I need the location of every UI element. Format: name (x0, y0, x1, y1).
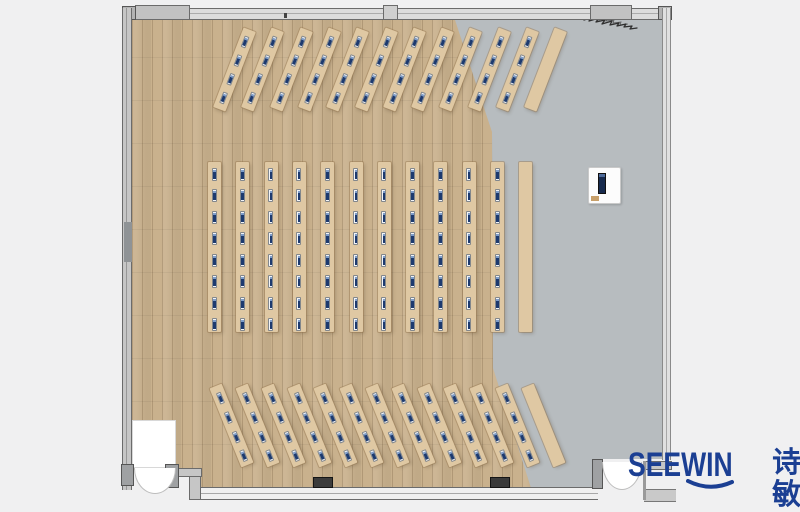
monitor (495, 297, 500, 310)
monitor (240, 254, 245, 267)
monitor (457, 411, 466, 424)
desk-strip-middle (463, 162, 476, 332)
monitor (353, 254, 358, 267)
monitor (438, 211, 443, 224)
monitor (410, 318, 415, 331)
monitor (257, 431, 266, 444)
desk-strip-middle (350, 162, 363, 332)
monitor (381, 254, 386, 267)
monitor (480, 73, 489, 86)
monitor (233, 54, 242, 67)
logo-swoosh-icon (686, 479, 734, 491)
monitor (319, 392, 328, 405)
monitor (410, 254, 415, 267)
monitor (466, 275, 471, 288)
left-wall-post (124, 222, 132, 262)
monitor (360, 91, 369, 104)
monitor (381, 232, 386, 245)
monitor (466, 189, 471, 202)
monitor (240, 232, 245, 245)
monitor (254, 73, 263, 86)
monitor (296, 275, 301, 288)
monitor (296, 168, 301, 181)
monitor (240, 168, 245, 181)
monitor (405, 411, 414, 424)
lectern (588, 167, 621, 204)
monitor (301, 411, 310, 424)
desk-strip-middle (434, 162, 447, 332)
logo-latin-text: SEEWIN (628, 448, 733, 482)
monitor (475, 392, 484, 405)
monitor (466, 232, 471, 245)
monitor (381, 318, 386, 331)
desk-strip-middle (321, 162, 334, 332)
monitor (495, 232, 500, 245)
monitor (394, 449, 403, 462)
monitor (219, 91, 228, 104)
monitor (438, 275, 443, 288)
desk-strip-middle (293, 162, 306, 332)
monitor (345, 392, 354, 405)
monitor (438, 189, 443, 202)
monitor (410, 232, 415, 245)
monitor (275, 411, 284, 424)
monitor (396, 73, 405, 86)
monitor (495, 318, 500, 331)
monitor (325, 211, 330, 224)
monitor (446, 449, 455, 462)
monitor (388, 91, 397, 104)
monitor (223, 411, 232, 424)
monitor (410, 189, 415, 202)
column-pillar (490, 477, 510, 488)
monitor (516, 54, 525, 67)
monitor (282, 73, 291, 86)
monitor (473, 91, 482, 104)
monitor (410, 275, 415, 288)
monitor (240, 211, 245, 224)
monitor (268, 211, 273, 224)
monitor (304, 91, 313, 104)
monitor (240, 35, 249, 48)
monitor (381, 275, 386, 288)
monitor (353, 168, 358, 181)
lectern-shelf (591, 196, 599, 201)
monitor (368, 449, 377, 462)
monitor (449, 392, 458, 405)
monitor (466, 297, 471, 310)
monitor (296, 254, 301, 267)
monitor (438, 297, 443, 310)
monitor (268, 189, 273, 202)
monitor (275, 91, 284, 104)
monitor (240, 275, 245, 288)
monitor (212, 254, 217, 267)
monitor (325, 168, 330, 181)
monitor (353, 411, 362, 424)
monitor (293, 392, 302, 405)
monitor (381, 211, 386, 224)
monitor (410, 211, 415, 224)
monitor (524, 449, 533, 462)
monitor (309, 431, 318, 444)
monitor (212, 232, 217, 245)
monitor (439, 431, 448, 444)
monitor (445, 91, 454, 104)
monitor (483, 411, 492, 424)
monitor (264, 449, 273, 462)
monitor (403, 54, 412, 67)
monitor (316, 449, 325, 462)
monitor (502, 91, 511, 104)
desk-strip-middle (519, 162, 532, 332)
monitor (467, 35, 476, 48)
monitor (290, 54, 299, 67)
monitor (296, 297, 301, 310)
monitor (335, 431, 344, 444)
floor-plan: SEEWIN 诗敏 (0, 0, 800, 507)
monitor (466, 318, 471, 331)
monitor (517, 431, 526, 444)
monitor (397, 392, 406, 405)
desk-layer (0, 0, 800, 507)
monitor (374, 54, 383, 67)
monitor (290, 449, 299, 462)
monitor (381, 297, 386, 310)
monitor (509, 411, 518, 424)
monitor (231, 431, 240, 444)
monitor (424, 73, 433, 86)
monitor (353, 35, 362, 48)
monitor (495, 275, 500, 288)
monitor (466, 168, 471, 181)
monitor (509, 73, 518, 86)
monitor (491, 431, 500, 444)
monitor (353, 318, 358, 331)
monitor (325, 189, 330, 202)
monitor (523, 35, 532, 48)
monitor (325, 318, 330, 331)
monitor (311, 73, 320, 86)
monitor (495, 35, 504, 48)
monitor (353, 232, 358, 245)
monitor (296, 211, 301, 224)
monitor (466, 254, 471, 267)
entrance-left-vestibule (132, 420, 176, 468)
monitor (459, 54, 468, 67)
monitor (325, 297, 330, 310)
monitor (438, 232, 443, 245)
monitor (296, 189, 301, 202)
monitor (268, 254, 273, 267)
lectern-screen (598, 173, 606, 194)
desk-strip-middle (406, 162, 419, 332)
monitor (212, 318, 217, 331)
monitor (212, 275, 217, 288)
monitor (268, 318, 273, 331)
monitor (495, 168, 500, 181)
monitor (353, 297, 358, 310)
monitor (410, 35, 419, 48)
monitor (212, 168, 217, 181)
monitor (353, 211, 358, 224)
monitor (498, 449, 507, 462)
monitor (495, 211, 500, 224)
monitor (268, 35, 277, 48)
monitor (379, 411, 388, 424)
monitor (226, 73, 235, 86)
monitor (240, 189, 245, 202)
monitor (381, 189, 386, 202)
monitor (327, 411, 336, 424)
monitor (495, 254, 500, 267)
top-wall-post (383, 5, 398, 20)
monitor (241, 392, 250, 405)
column-pillar (313, 477, 333, 488)
monitor (238, 449, 247, 462)
monitor (431, 411, 440, 424)
monitor (501, 392, 510, 405)
desk-strip-middle (265, 162, 278, 332)
monitor (342, 449, 351, 462)
bottom-window-wall (200, 487, 598, 500)
monitor (296, 232, 301, 245)
monitor (297, 35, 306, 48)
monitor (283, 431, 292, 444)
right-wall (662, 8, 671, 460)
monitor (438, 318, 443, 331)
monitor (318, 54, 327, 67)
top-wall-segment-left (135, 5, 190, 20)
monitor (466, 211, 471, 224)
monitor (420, 449, 429, 462)
monitor (431, 54, 440, 67)
desk-strip-middle (208, 162, 221, 332)
monitor (296, 318, 301, 331)
monitor (247, 91, 256, 104)
monitor (261, 54, 270, 67)
monitor (472, 449, 481, 462)
monitor (382, 35, 391, 48)
monitor (495, 189, 500, 202)
monitor (325, 254, 330, 267)
monitor (268, 275, 273, 288)
desk-strip-middle (236, 162, 249, 332)
monitor (268, 297, 273, 310)
seewin-logo: SEEWIN 诗敏 (628, 448, 800, 512)
door-post (121, 464, 134, 486)
monitor (240, 318, 245, 331)
monitor (488, 54, 497, 67)
monitor (410, 297, 415, 310)
desk-strip-middle (378, 162, 391, 332)
monitor (387, 431, 396, 444)
monitor (413, 431, 422, 444)
monitor (249, 411, 258, 424)
monitor (339, 73, 348, 86)
logo-cjk-text: 诗敏 (772, 448, 800, 512)
monitor (268, 168, 273, 181)
monitor (212, 189, 217, 202)
monitor (212, 211, 217, 224)
monitor (452, 73, 461, 86)
monitor (346, 54, 355, 67)
monitor (212, 297, 217, 310)
monitor (325, 35, 334, 48)
monitor (381, 168, 386, 181)
monitor (423, 392, 432, 405)
monitor (240, 297, 245, 310)
monitor (325, 275, 330, 288)
monitor (438, 35, 447, 48)
monitor (465, 431, 474, 444)
monitor (325, 232, 330, 245)
wall-return-vertical (189, 476, 201, 500)
monitor (361, 431, 370, 444)
top-wall-segment-right (590, 5, 632, 20)
wall-marker (284, 13, 287, 18)
monitor (353, 189, 358, 202)
monitor (438, 168, 443, 181)
monitor (267, 392, 276, 405)
desk-strip-middle (491, 162, 504, 332)
monitor (215, 392, 224, 405)
monitor (417, 91, 426, 104)
monitor (332, 91, 341, 104)
monitor (438, 254, 443, 267)
monitor (371, 392, 380, 405)
monitor (353, 275, 358, 288)
monitor (410, 168, 415, 181)
monitor (367, 73, 376, 86)
monitor (268, 232, 273, 245)
